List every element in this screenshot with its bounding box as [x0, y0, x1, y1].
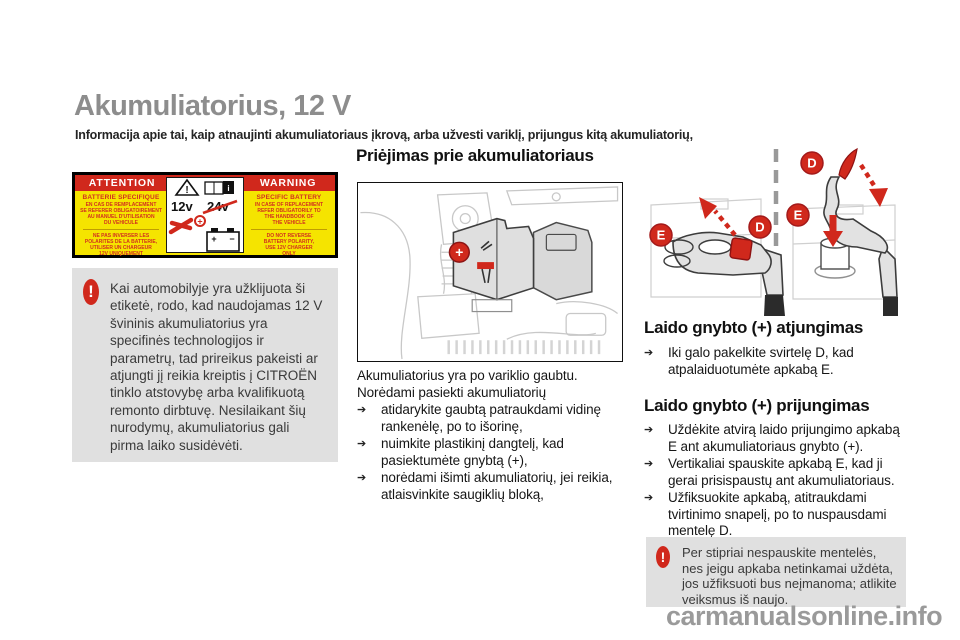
connect-instructions: ➔ Uždėkite atvirą laido prijungimo apkab…: [644, 421, 904, 540]
list-item: ➔ atidarykite gaubtą patraukdami vidinę …: [357, 402, 629, 435]
12v-text: 12v: [171, 199, 193, 214]
bullet-arrow-icon: ➔: [357, 470, 381, 503]
release-arrow: [699, 197, 717, 219]
note-box-lever-caution: ! Per stipriai nespauskite mentelės, nes…: [646, 537, 906, 607]
disconnect-instructions: ➔ Iki galo pakelkite svirtelę D, kad atp…: [644, 344, 902, 378]
svg-text:E: E: [657, 228, 666, 243]
sticker-french-column: BATTERIE SPECIFIQUE EN CAS DE REMPLACEME…: [75, 194, 167, 257]
access-intro-line: Akumuliatorius yra po variklio gaubtu.: [357, 368, 629, 385]
note-left-text: Kai automobilyje yra užklijuota ši etike…: [110, 280, 326, 454]
list-item: ➔ Iki galo pakelkite svirtelę D, kad atp…: [644, 345, 902, 378]
lever-d-open: [839, 149, 857, 179]
sticker-english-column: SPECIFIC BATTERY IN CASE OF REPLACEMENT …: [243, 194, 335, 257]
section-heading-connect: Laido gnybto (+) prijungimas: [644, 396, 869, 416]
watermark-text: carmanualsonline.info: [666, 601, 942, 632]
warning-label: WARNING: [241, 175, 335, 191]
bullet-arrow-icon: ➔: [644, 456, 668, 489]
list-item: ➔ Vertikaliai spauskite apkabą E, kad ji…: [644, 456, 904, 489]
engine-bay-drawing: +: [358, 183, 622, 361]
clamp-red-detail: [477, 262, 494, 269]
bullet-arrow-icon: ➔: [357, 436, 381, 469]
battery-plus-sign: +: [211, 234, 216, 244]
plus-circle-icon: +: [197, 217, 202, 227]
access-instructions: Akumuliatorius yra po variklio gaubtu. N…: [357, 368, 629, 503]
page-title: Akumuliatorius, 12 V: [74, 90, 351, 123]
section-heading-disconnect: Laido gnybto (+) atjungimas: [644, 318, 863, 338]
access-intro-line: Norėdami pasiekti akumuliatorių: [357, 385, 629, 402]
manual-page: Akumuliatorius, 12 V Informacija apie ta…: [0, 0, 960, 640]
sticker-divider: [83, 229, 159, 230]
battery-cable: [764, 295, 785, 316]
bullet-arrow-icon: ➔: [644, 490, 668, 540]
battery-minus-sign: −: [229, 234, 234, 244]
battery-cable: [883, 297, 898, 316]
sticker-center-art: ! i 12v 24v + + −: [166, 177, 244, 253]
lever-d: [730, 238, 753, 261]
sticker-divider: [251, 229, 327, 230]
page-subtitle: Informacija apie tai, kaip atnaujinti ak…: [75, 128, 715, 142]
warning-exclamation-icon: !: [656, 546, 670, 568]
svg-text:D: D: [807, 156, 816, 171]
list-item: ➔ Uždėkite atvirą laido prijungimo apkab…: [644, 422, 904, 455]
warning-triangle-icon: !: [185, 185, 188, 196]
list-item: ➔ Užfiksuokite apkabą, atitraukdami tvir…: [644, 490, 904, 540]
battery-warning-sticker: ATTENTION WARNING BATTERIE SPECIFIQUE EN…: [72, 172, 338, 258]
warning-exclamation-icon: !: [83, 279, 99, 305]
list-item: ➔ nuimkite plastikinį dangtelį, kad pasi…: [357, 436, 629, 469]
bullet-arrow-icon: ➔: [644, 422, 668, 455]
attention-label: ATTENTION: [75, 175, 169, 191]
terminal-clamp-drawing: E D D E: [643, 147, 906, 316]
note-right-text: Per stipriai nespauskite mentelės, nes j…: [682, 545, 898, 607]
close-arrow: [869, 188, 888, 207]
svg-text:E: E: [794, 208, 803, 223]
plus-terminal-icon: +: [455, 244, 463, 260]
terminal-clamp-figure: E D D E: [643, 147, 906, 316]
sticker-pictograms: ! i 12v 24v + + −: [167, 178, 243, 254]
sticker-body: ATTENTION WARNING BATTERIE SPECIFIQUE EN…: [75, 175, 335, 255]
svg-text:D: D: [755, 220, 764, 235]
bullet-arrow-icon: ➔: [357, 402, 381, 435]
section-heading-access: Priėjimas prie akumuliatoriaus: [356, 146, 594, 166]
bullet-arrow-icon: ➔: [644, 345, 668, 378]
engine-bay-figure: +: [357, 182, 623, 362]
note-box-specific-battery: ! Kai automobilyje yra užklijuota ši eti…: [72, 268, 338, 462]
handbook-icon: i: [227, 184, 229, 193]
list-item: ➔ norėdami išimti akumuliatorių, jei rei…: [357, 470, 629, 503]
